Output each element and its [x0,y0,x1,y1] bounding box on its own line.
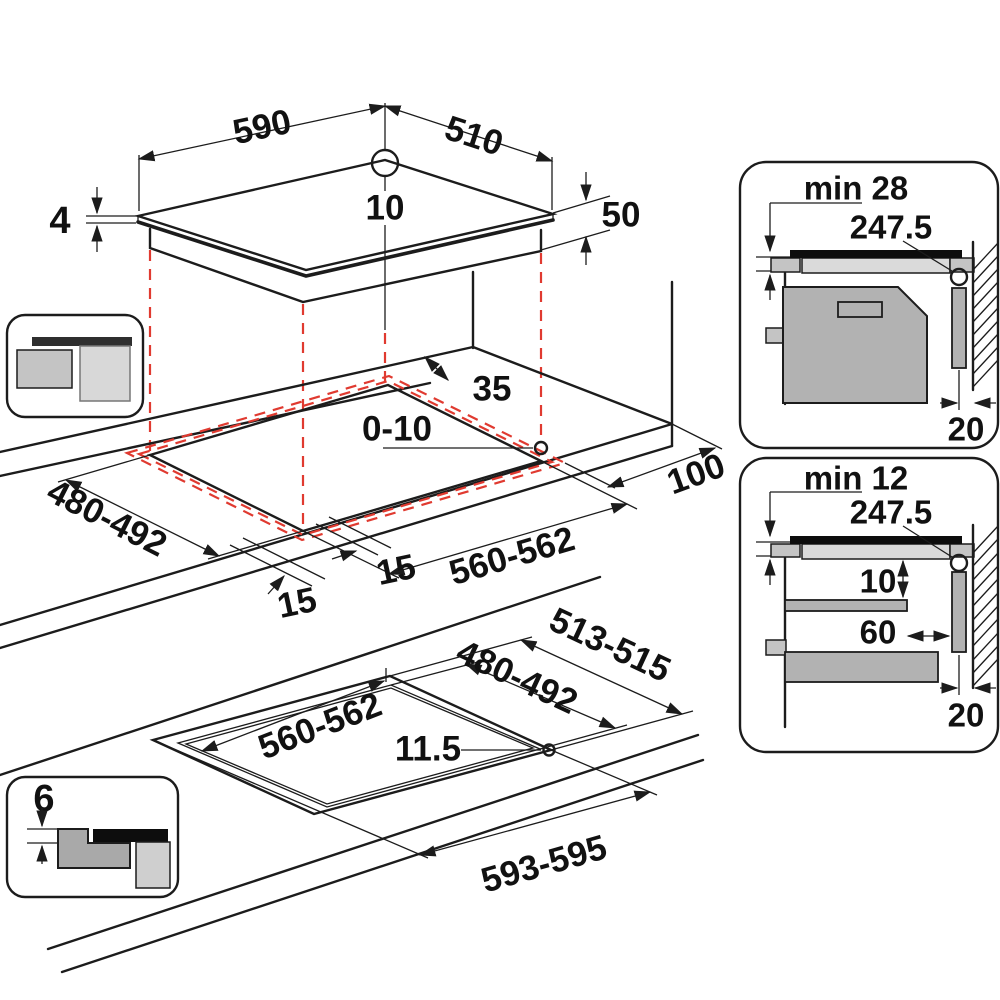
dim-label-6: 6 [33,778,54,820]
dim-label-flush-inner-width: 560-562 [253,685,387,767]
dim-label-recess-width: 593-595 [477,828,611,901]
glass-section [93,829,168,842]
glass-profile [790,536,962,544]
dim-label-10: 10 [366,189,405,228]
installation-diagram: 590 510 10 4 50 [0,0,1000,1000]
cabinet-icon [80,346,130,401]
oven-icon [17,350,72,388]
dim-label-15-side: 15 [274,580,320,626]
label-min-28: min 28 [804,170,909,207]
dim-label-flush-inner-depth: 480-492 [451,632,584,722]
hob-body-section [136,842,170,888]
glass-profile [790,250,962,258]
dim-label-50: 50 [602,196,641,235]
hob-glass-icon [32,337,132,346]
label-60-b: 60 [860,614,897,651]
dim-label-15-front: 15 [373,547,419,593]
dim-label-590: 590 [229,102,294,152]
cabinet-rail-icon [766,640,786,655]
hob-isometric-view: 590 510 10 4 50 [49,102,640,330]
dim-label-cutout-width: 560-562 [445,519,579,593]
rear-spacer [952,572,966,652]
dim-label-4: 4 [49,200,70,242]
hob-body-profile [802,544,950,559]
dim-label-35: 35 [473,370,512,409]
mounting-pictogram-inset [7,315,143,417]
dim-label-510: 510 [440,108,508,163]
clearance-oven-inset: min 28 247.5 20 [740,162,998,448]
dim-label-0-10: 0-10 [362,410,432,449]
clearance-shelf-inset: min 12 10 60 247.5 20 [740,458,998,752]
shelf-profile [785,600,907,611]
rear-spacer [952,288,966,368]
label-247-5-b: 247.5 [850,494,933,531]
drawer-profile [785,652,938,682]
hob-body-profile [802,258,950,273]
dim-label-100: 100 [662,446,730,503]
dim-label-11-5: 11.5 [395,730,461,769]
hob-glass-top [138,160,553,270]
label-min-12: min 12 [804,460,909,497]
label-247-5-a: 247.5 [850,209,933,246]
label-10-b: 10 [860,563,897,600]
dim-label-cutout-depth: 480-492 [41,471,173,564]
label-20-a: 20 [948,411,985,448]
flush-step-detail-inset: 6 [7,777,178,897]
oven-vent-icon [838,302,882,317]
flush-mount-view: 11.5 560-562 480-492 513-515 593-595 [0,577,703,972]
diagram-canvas: 590 510 10 4 50 [0,0,1000,1000]
label-20-b: 20 [948,697,985,734]
